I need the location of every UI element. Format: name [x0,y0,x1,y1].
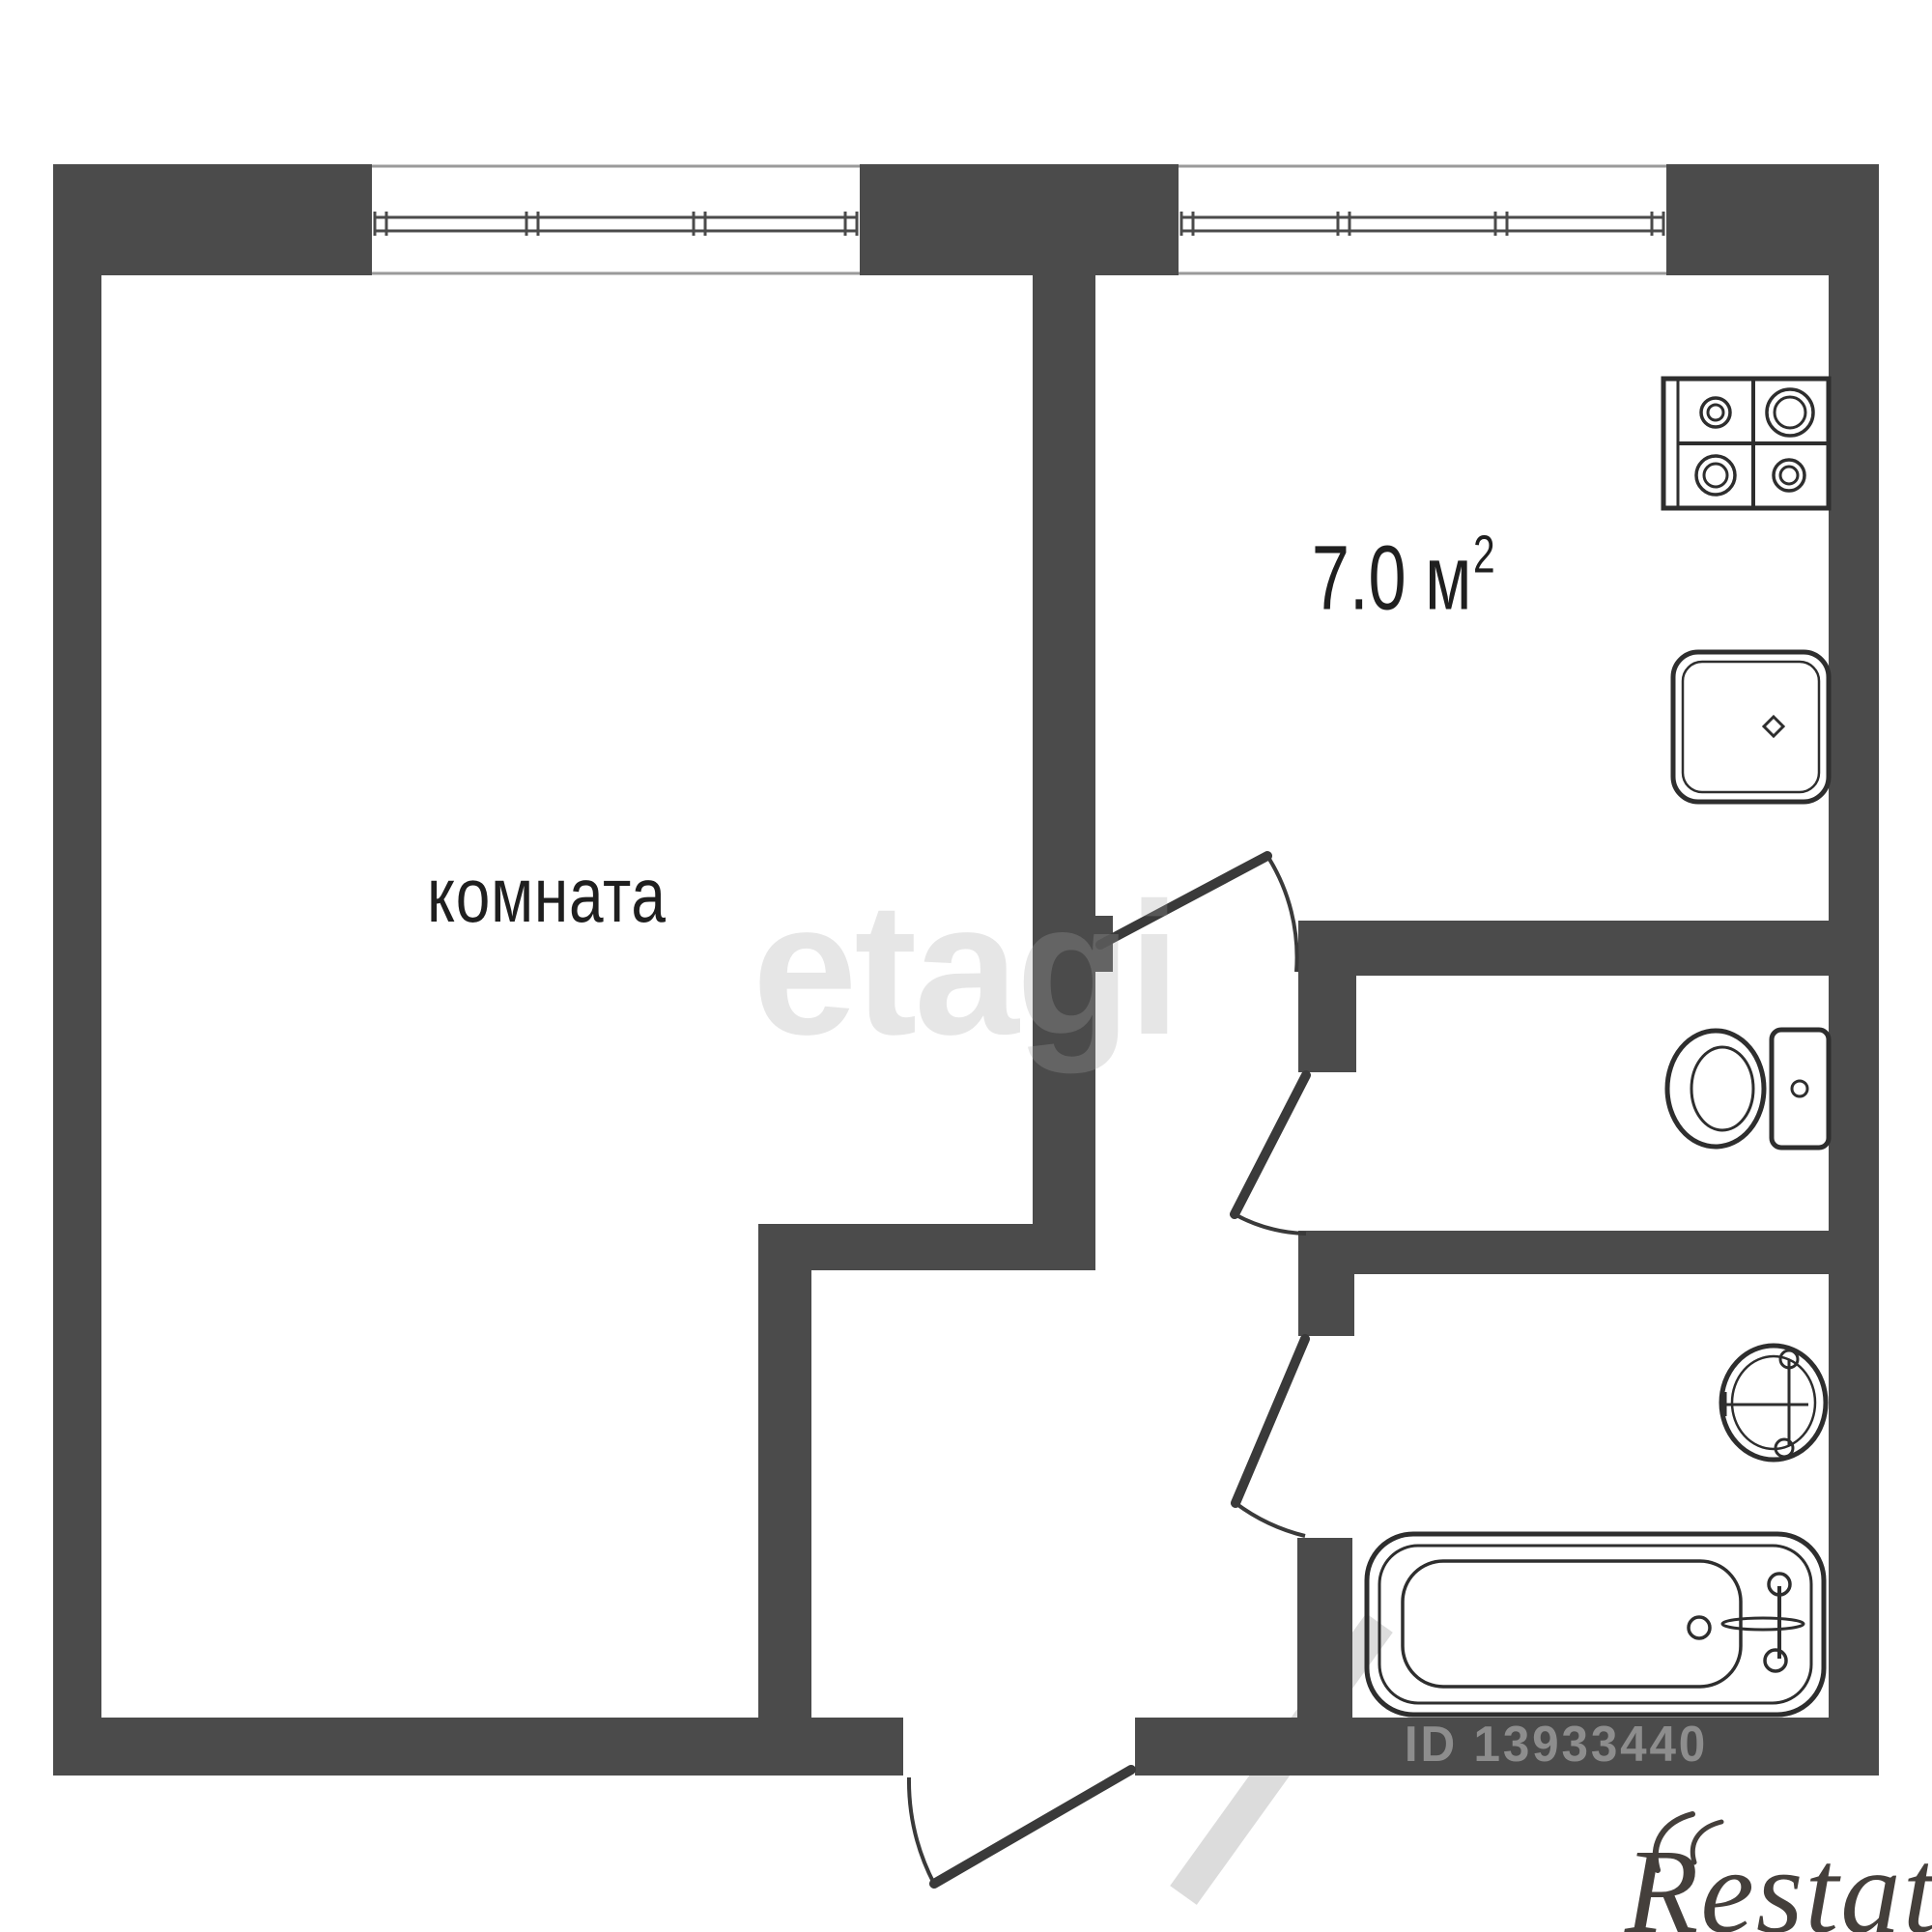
bathtub-icon [1367,1534,1824,1715]
kitchen-sink-icon [1673,652,1829,802]
room-label: комната [427,851,667,940]
toilet-icon [1667,1030,1829,1148]
watermark-listing-id: ID 13933440 [1405,1716,1708,1774]
toilet-door-icon [1235,1075,1306,1234]
bathroom-door-icon [1236,1339,1305,1536]
kitchen-area-value: 7.0 м [1312,527,1472,630]
stove-icon [1663,379,1829,508]
kitchen-window-icon [1179,166,1666,273]
room-window-icon [372,166,860,273]
kitchen-area-exponent: 2 [1473,525,1495,584]
kitchen-area-label: 7.0 м2 [1312,526,1493,632]
entry-door-icon [909,1770,1131,1884]
watermark-center-brand: etagi [753,861,1178,1077]
floor-plan: etagi комната 7.0 м2 ID 13933440 Restate [0,0,1932,1932]
washbasin-icon [1721,1346,1826,1460]
watermark-corner-brand: Restate [1625,1824,1932,1932]
